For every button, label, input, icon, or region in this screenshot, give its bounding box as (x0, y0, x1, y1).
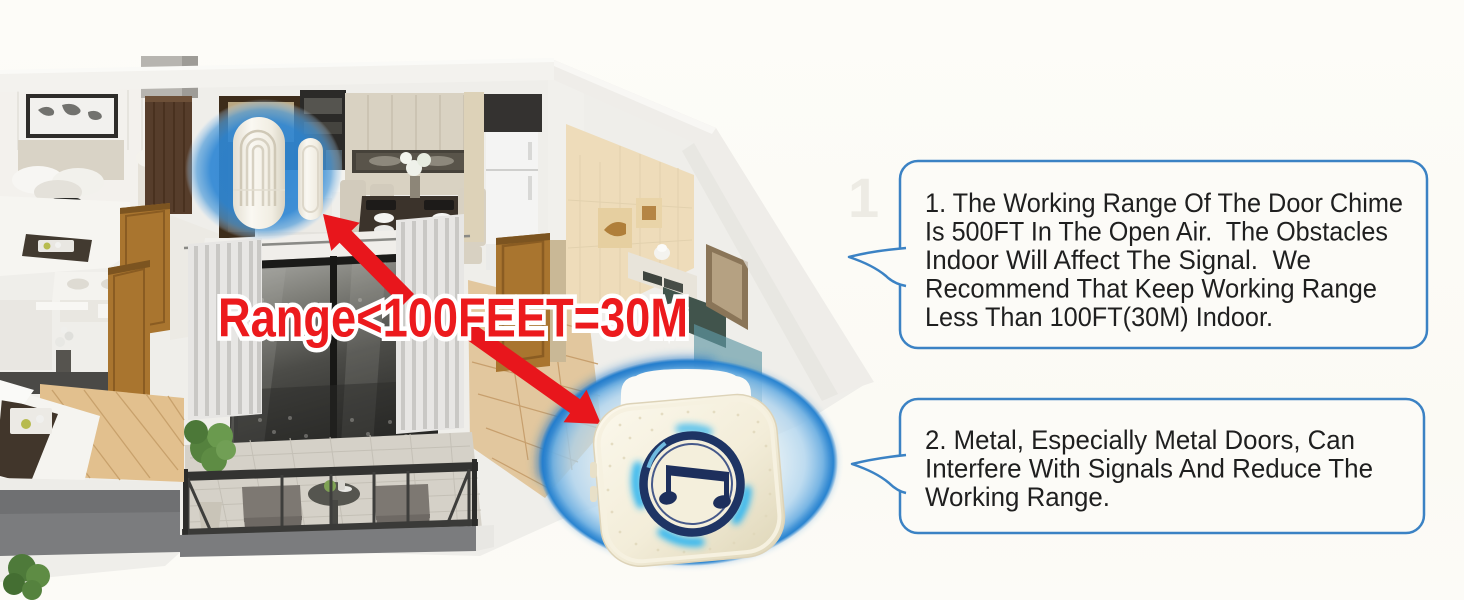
svg-text:2. Metal, Especially Metal Doo: 2. Metal, Especially Metal Doors, Can (925, 425, 1355, 455)
svg-text:1: 1 (848, 166, 879, 229)
svg-text:1. The Working Range Of The Do: 1. The Working Range Of The Door Chime (925, 188, 1403, 218)
svg-text:Range<100FEET=30M: Range<100FEET=30M (218, 287, 688, 349)
svg-text:Recommend That Keep Working Ra: Recommend That Keep Working Range (925, 274, 1377, 304)
svg-text:Interfere With Signals And Red: Interfere With Signals And Reduce The (925, 454, 1373, 484)
svg-text:Indoor Will Affect The Signal.: Indoor Will Affect The Signal. We (925, 245, 1311, 275)
svg-text:Less Than 100FT(30M) Indoor.: Less Than 100FT(30M) Indoor. (925, 302, 1273, 332)
svg-text:Working Range.: Working Range. (925, 482, 1110, 512)
svg-text:Is 500FT In The Open Air. The: Is 500FT In The Open Air. The Obstacles (925, 217, 1388, 247)
